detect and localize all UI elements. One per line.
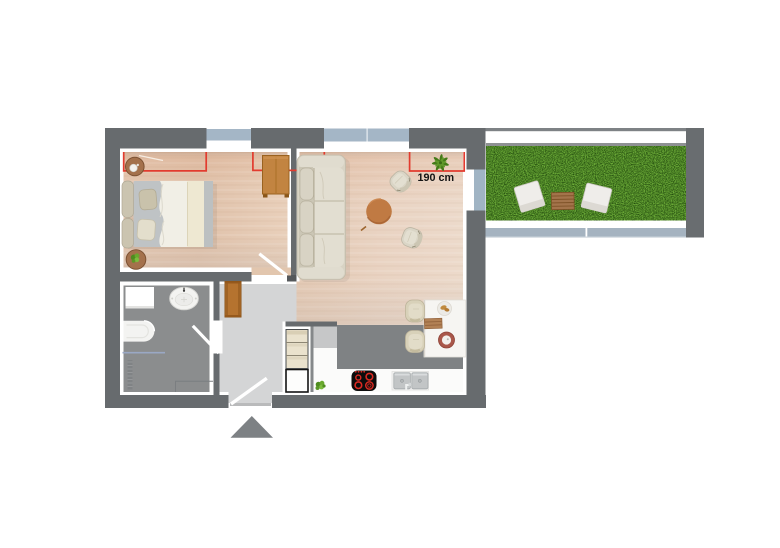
- svg-text:190 cm: 190 cm: [418, 172, 455, 184]
